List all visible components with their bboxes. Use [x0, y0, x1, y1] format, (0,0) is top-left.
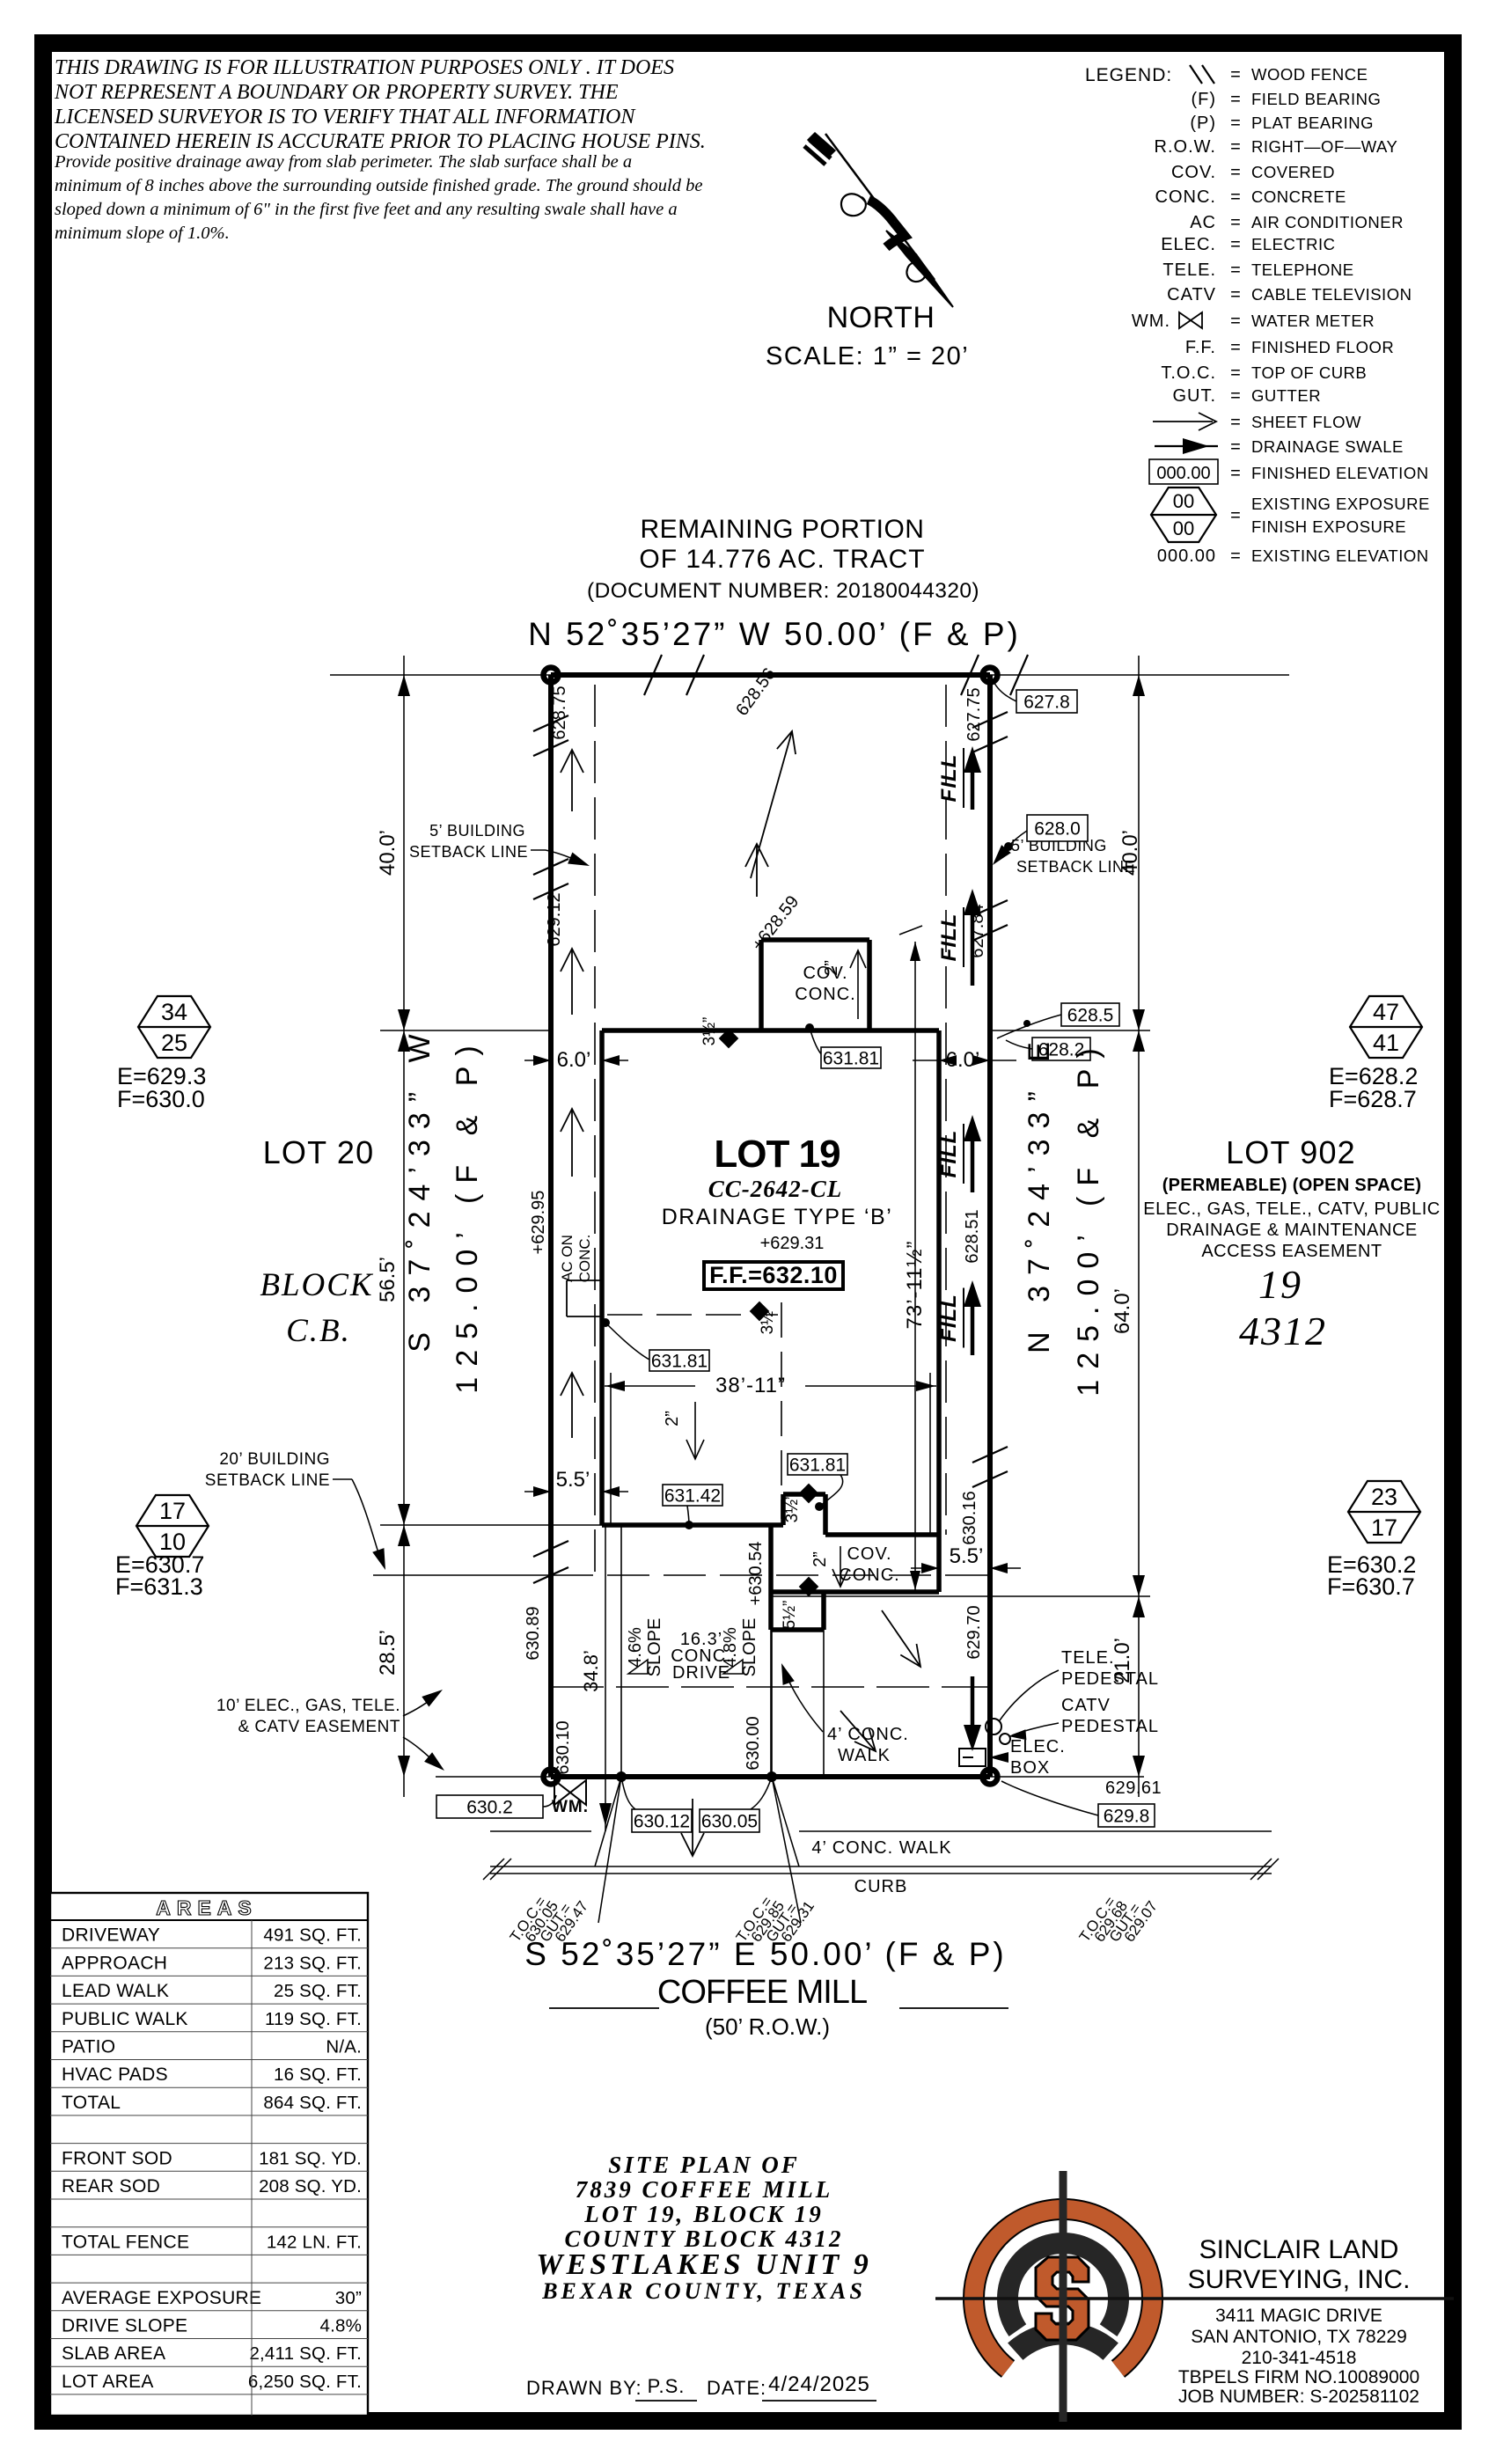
svg-text:=: = [1230, 235, 1241, 254]
svg-text:00: 00 [1173, 517, 1194, 539]
svg-text:629.61: 629.61 [1105, 1778, 1162, 1798]
svg-text:17: 17 [1371, 1514, 1397, 1541]
svg-text:C.B.: C.B. [286, 1313, 351, 1349]
svg-text:WATER METER: WATER METER [1251, 312, 1375, 330]
svg-text:SURVEYING, INC.: SURVEYING, INC. [1188, 2265, 1411, 2294]
svg-text:=: = [1230, 386, 1241, 406]
svg-text:4.6%: 4.6% [626, 1627, 645, 1668]
svg-text:208 SQ. YD.: 208 SQ. YD. [259, 2176, 362, 2196]
svg-text:N/A.: N/A. [326, 2037, 362, 2057]
svg-text:=: = [1230, 464, 1241, 483]
svg-text:DRAINAGE SWALE: DRAINAGE SWALE [1251, 437, 1404, 456]
svg-text:Provide positive drainage away: Provide positive drainage away from slab… [54, 152, 632, 172]
svg-text:210-341-4518: 210-341-4518 [1242, 2348, 1357, 2368]
svg-text:APPROACH: APPROACH [62, 1953, 167, 1973]
svg-text:4.8%: 4.8% [319, 2316, 362, 2336]
svg-text:FIELD BEARING: FIELD BEARING [1251, 90, 1381, 108]
svg-text:(DOCUMENT NUMBER: 2018004432: (DOCUMENT NUMBER: 20180044320) [587, 579, 979, 603]
svg-text:000.00: 000.00 [1157, 546, 1216, 566]
svg-text:=: = [1230, 312, 1241, 331]
svg-text:COFFEE MILL: COFFEE MILL [657, 1974, 867, 2011]
svg-text:TOTAL FENCE: TOTAL FENCE [62, 2232, 189, 2252]
svg-text:(50’ R.O.W.): (50’ R.O.W.) [705, 2013, 830, 2040]
svg-text:CONC.: CONC. [839, 1566, 899, 1585]
svg-text:630.10: 630.10 [554, 1720, 573, 1774]
svg-text:6.0’: 6.0’ [946, 1048, 980, 1072]
svg-text:F=631.3: F=631.3 [115, 1573, 203, 1600]
svg-text:S 37˚24’33” W: S 37˚24’33” W [403, 1023, 436, 1352]
svg-text:ELEC., GAS, TELE., CATV, PUBLI: ELEC., GAS, TELE., CATV, PUBLIC [1143, 1199, 1440, 1219]
svg-text:+629.31: +629.31 [760, 1234, 825, 1253]
svg-text:125.00’ (F & P): 125.00’ (F & P) [451, 1035, 484, 1393]
svg-text:6,250 SQ. FT.: 6,250 SQ. FT. [248, 2372, 362, 2392]
svg-text:CATV: CATV [1167, 285, 1216, 304]
svg-text:WOOD FENCE: WOOD FENCE [1251, 65, 1368, 84]
svg-text:TELEPHONE: TELEPHONE [1251, 260, 1354, 279]
svg-text:F=630.7: F=630.7 [1327, 1573, 1415, 1600]
svg-text:73’-11½”: 73’-11½” [903, 1241, 927, 1330]
svg-text:TOTAL: TOTAL [62, 2093, 121, 2113]
svg-text:R.O.W.: R.O.W. [1155, 137, 1216, 157]
svg-text:627.8: 627.8 [1023, 692, 1070, 712]
svg-text:TELE.: TELE. [1061, 1648, 1115, 1668]
svg-text:N 52˚35’27” W 50.00’ (F &: N 52˚35’27” W 50.00’ (F & P) [528, 616, 1021, 652]
svg-text:16 SQ. FT.: 16 SQ. FT. [274, 2064, 362, 2085]
svg-text:P.S.: P.S. [648, 2375, 686, 2397]
svg-text:F=628.7: F=628.7 [1329, 1086, 1417, 1112]
svg-text:630.05: 630.05 [701, 1811, 758, 1831]
svg-text:ELECTRIC: ELECTRIC [1251, 235, 1336, 253]
svg-text:ELEC.: ELEC. [1010, 1737, 1066, 1756]
svg-text:DATE:: DATE: [707, 2377, 766, 2399]
svg-text:PEDESTAL: PEDESTAL [1061, 1717, 1159, 1736]
svg-text:+629.95: +629.95 [529, 1191, 548, 1255]
svg-text:2”: 2” [663, 1411, 682, 1426]
svg-text:DRIVEWAY: DRIVEWAY [62, 1925, 160, 1946]
svg-text:& CATV EASEMENT: & CATV EASEMENT [238, 1718, 400, 1736]
svg-text:5.5’: 5.5’ [556, 1468, 590, 1492]
svg-text:=: = [1230, 506, 1241, 525]
svg-text:630.2: 630.2 [466, 1797, 513, 1817]
svg-text:F.F.: F.F. [1185, 338, 1216, 357]
svg-text:AREAS: AREAS [156, 1896, 258, 1919]
svg-text:LOT 20: LOT 20 [263, 1134, 375, 1170]
svg-text:FILL: FILL [937, 1130, 961, 1178]
svg-text:628.0: 628.0 [1034, 818, 1081, 839]
svg-text:HVAC PADS: HVAC PADS [62, 2064, 168, 2085]
svg-text:4.8%: 4.8% [721, 1627, 740, 1668]
svg-text:30”: 30” [335, 2288, 362, 2308]
svg-text:minimum slope of 1.0%.: minimum slope of 1.0%. [55, 224, 230, 243]
svg-text:(PERMEABLE) (OPEN SPACE): (PERMEABLE) (OPEN SPACE) [1162, 1176, 1422, 1195]
svg-text:SETBACK LINE: SETBACK LINE [1016, 858, 1135, 876]
svg-text:=: = [1230, 65, 1241, 84]
svg-text:EXISTING EXPOSURE: EXISTING EXPOSURE [1251, 495, 1430, 513]
svg-text:628.75: 628.75 [550, 686, 569, 739]
svg-text:=: = [1230, 187, 1241, 207]
svg-text:PEDESTAL: PEDESTAL [1061, 1669, 1159, 1689]
svg-text:CONCRETE: CONCRETE [1251, 187, 1346, 206]
svg-text:WM.: WM. [1132, 312, 1170, 331]
svg-text:SETBACK LINE: SETBACK LINE [409, 843, 528, 861]
svg-text:GUT.: GUT. [1172, 386, 1216, 406]
svg-text:JOB NUMBER: S-202581102: JOB NUMBER: S-202581102 [1178, 2387, 1419, 2407]
svg-text:3½”: 3½” [700, 1017, 719, 1046]
svg-text:2”: 2” [810, 1551, 830, 1567]
svg-text:4312: 4312 [1239, 1309, 1327, 1353]
svg-text:CC-2642-CL: CC-2642-CL [708, 1176, 843, 1202]
svg-text:FILL: FILL [937, 754, 961, 803]
svg-text:631.81: 631.81 [823, 1048, 879, 1068]
svg-text:LEAD WALK: LEAD WALK [62, 1981, 169, 2001]
svg-text:WESTLAKES UNIT 9: WESTLAKES UNIT 9 [536, 2248, 871, 2281]
svg-text:LEGEND:: LEGEND: [1085, 65, 1172, 85]
svg-text:F=630.0: F=630.0 [117, 1086, 205, 1112]
svg-text:491 SQ. FT.: 491 SQ. FT. [263, 1925, 362, 1946]
svg-text:25: 25 [161, 1030, 187, 1056]
svg-text:REAR SOD: REAR SOD [62, 2176, 160, 2196]
svg-text:=: = [1230, 137, 1241, 157]
svg-text:631.81: 631.81 [651, 1351, 708, 1371]
svg-text:631.81: 631.81 [789, 1455, 846, 1475]
svg-text:41: 41 [1373, 1030, 1399, 1056]
svg-text:19: 19 [1258, 1262, 1302, 1307]
svg-text:SCALE: 1” = 20’: SCALE: 1” = 20’ [766, 342, 969, 370]
svg-text:LOT 19: LOT 19 [714, 1133, 840, 1176]
svg-text:SINCLAIR LAND: SINCLAIR LAND [1199, 2235, 1399, 2264]
svg-text:CURB: CURB [854, 1877, 908, 1896]
svg-text:6.0’: 6.0’ [557, 1048, 591, 1072]
svg-text:FINISHED ELEVATION: FINISHED ELEVATION [1251, 464, 1429, 482]
svg-text:119 SQ. FT.: 119 SQ. FT. [265, 2009, 362, 2029]
svg-text:34.8’: 34.8’ [580, 1650, 602, 1692]
svg-text:=: = [1230, 163, 1241, 182]
svg-text:4’ CONC. WALK: 4’ CONC. WALK [811, 1838, 951, 1858]
svg-text:CABLE TELEVISION: CABLE TELEVISION [1251, 285, 1412, 304]
svg-text:CONC.: CONC. [576, 1235, 593, 1283]
svg-text:CONC.: CONC. [1155, 187, 1216, 207]
svg-text:DRIVE SLOPE: DRIVE SLOPE [62, 2316, 187, 2336]
svg-text:=: = [1230, 90, 1241, 109]
svg-text:=: = [1230, 260, 1241, 280]
svg-text:CONTAINED HEREIN IS ACCURATE P: CONTAINED HEREIN IS ACCURATE PRIOR TO PL… [55, 130, 706, 153]
svg-text:4’ CONC.: 4’ CONC. [827, 1725, 909, 1744]
svg-text:64.0’: 64.0’ [1111, 1288, 1134, 1334]
svg-text:5½”: 5½” [781, 1601, 799, 1630]
svg-text:FINISH EXPOSURE: FINISH EXPOSURE [1251, 517, 1406, 536]
svg-text:EXISTING ELEVATION: EXISTING ELEVATION [1251, 546, 1429, 565]
svg-text:AC ON: AC ON [559, 1235, 576, 1282]
svg-text:213 SQ. FT.: 213 SQ. FT. [263, 1953, 362, 1973]
svg-text:SAN ANTONIO, TX 78229: SAN ANTONIO, TX 78229 [1191, 2327, 1407, 2347]
svg-text:COVERED: COVERED [1251, 163, 1335, 181]
svg-text:629.8: 629.8 [1104, 1806, 1150, 1826]
svg-text:40.0’: 40.0’ [376, 830, 400, 876]
svg-text:=: = [1230, 338, 1241, 357]
svg-text:ACCESS EASEMENT: ACCESS EASEMENT [1201, 1242, 1382, 1261]
svg-text:3411 MAGIC DRIVE: 3411 MAGIC DRIVE [1215, 2306, 1382, 2326]
svg-text:=: = [1230, 546, 1241, 566]
svg-text:(P): (P) [1190, 114, 1216, 133]
svg-text:5’ BUILDING: 5’ BUILDING [429, 822, 525, 840]
svg-text:PUBLIC WALK: PUBLIC WALK [62, 2009, 188, 2029]
svg-text:630.00: 630.00 [744, 1716, 763, 1770]
svg-text:630.16: 630.16 [960, 1491, 979, 1544]
svg-text:630.89: 630.89 [524, 1606, 543, 1660]
svg-text:S 52˚35’27” E 50.00’ (F &: S 52˚35’27” E 50.00’ (F & P) [524, 1936, 1006, 1972]
svg-text:GUTTER: GUTTER [1251, 386, 1321, 405]
svg-text:=: = [1230, 437, 1241, 457]
svg-text:DRAINAGE TYPE ‘B’: DRAINAGE TYPE ‘B’ [662, 1205, 893, 1229]
svg-text:2,411 SQ. FT.: 2,411 SQ. FT. [249, 2343, 362, 2364]
svg-text:=: = [1230, 213, 1241, 232]
svg-text:SLAB AREA: SLAB AREA [62, 2343, 165, 2364]
svg-text:5.5’: 5.5’ [950, 1544, 984, 1568]
svg-text:142 LN. FT.: 142 LN. FT. [267, 2232, 362, 2252]
svg-text:=: = [1230, 363, 1241, 383]
svg-text:000.00: 000.00 [1156, 464, 1210, 483]
svg-text:630.12: 630.12 [634, 1811, 690, 1831]
svg-text:00: 00 [1173, 490, 1194, 512]
svg-text:2”: 2” [822, 960, 841, 976]
svg-text:PATIO: PATIO [62, 2037, 115, 2057]
svg-text:628.5: 628.5 [1067, 1005, 1114, 1025]
svg-text:628.51: 628.51 [963, 1209, 982, 1263]
svg-text:DRAWN BY:: DRAWN BY: [526, 2377, 642, 2399]
svg-text:F.F.=632.10: F.F.=632.10 [709, 1262, 838, 1288]
svg-text:TBPELS FIRM NO.10089000: TBPELS FIRM NO.10089000 [1178, 2367, 1419, 2387]
svg-text:THIS DRAWING IS FOR ILLUSTRATI: THIS DRAWING IS FOR ILLUSTRATION PURPOSE… [55, 56, 674, 79]
svg-text:17: 17 [159, 1498, 186, 1524]
svg-text:CONC.: CONC. [795, 985, 855, 1004]
svg-text:4/24/2025: 4/24/2025 [768, 2372, 870, 2396]
svg-text:WM.: WM. [552, 1798, 589, 1816]
svg-text:FILL: FILL [937, 913, 961, 962]
svg-text:TELE.: TELE. [1162, 260, 1216, 280]
svg-text:BLOCK: BLOCK [260, 1267, 374, 1303]
svg-text:3½”: 3½” [783, 1494, 802, 1523]
svg-text:629.70: 629.70 [964, 1605, 984, 1659]
svg-text:TOP OF CURB: TOP OF CURB [1251, 363, 1367, 382]
svg-text:WALK: WALK [838, 1746, 891, 1765]
svg-text:=: = [1230, 413, 1241, 432]
svg-text:SHEET FLOW: SHEET FLOW [1251, 413, 1361, 431]
svg-text:LICENSED SURVEYOR IS TO VERIFY: LICENSED SURVEYOR IS TO VERIFY THAT ALL … [54, 106, 636, 128]
svg-text:38’-11”: 38’-11” [715, 1374, 786, 1397]
svg-text:SETBACK LINE: SETBACK LINE [205, 1471, 330, 1490]
svg-text:631.42: 631.42 [664, 1485, 721, 1506]
svg-text:3½”: 3½” [759, 1306, 777, 1335]
svg-text:56.5’: 56.5’ [376, 1257, 400, 1302]
svg-text:34: 34 [161, 999, 187, 1025]
svg-text:=: = [1230, 114, 1241, 133]
svg-text:OF 14.776 AC. TRACT: OF 14.776 AC. TRACT [639, 545, 925, 574]
svg-text:FRONT SOD: FRONT SOD [62, 2148, 172, 2168]
svg-text:NOT REPRESENT A BOUNDARY OR PR: NOT REPRESENT A BOUNDARY OR PROPERTY SUR… [54, 81, 619, 104]
svg-text:COV.: COV. [847, 1544, 891, 1564]
svg-text:AVERAGE EXPOSURE: AVERAGE EXPOSURE [62, 2288, 261, 2308]
svg-text:=: = [1230, 285, 1241, 304]
svg-text:47: 47 [1373, 999, 1399, 1025]
svg-text:25 SQ. FT.: 25 SQ. FT. [274, 1981, 362, 2001]
svg-text:23: 23 [1371, 1484, 1397, 1510]
svg-text:minimum of 8 inches above the: minimum of 8 inches above the surroundin… [55, 176, 702, 195]
svg-text:SITE PLAN OF: SITE PLAN OF [608, 2152, 800, 2178]
svg-text:BEXAR COUNTY, TEXAS: BEXAR COUNTY, TEXAS [541, 2278, 866, 2304]
svg-text:LOT 19, BLOCK 19: LOT 19, BLOCK 19 [583, 2201, 824, 2227]
svg-text:10’ ELEC., GAS, TELE.: 10’ ELEC., GAS, TELE. [216, 1697, 400, 1715]
svg-text:629.12: 629.12 [545, 892, 564, 946]
svg-text:AC: AC [1190, 213, 1216, 232]
svg-text:125.00’ (F & P): 125.00’ (F & P) [1072, 1038, 1105, 1396]
svg-text:FINISHED FLOOR: FINISHED FLOOR [1251, 338, 1394, 356]
svg-text:DRAINAGE & MAINTENANCE: DRAINAGE & MAINTENANCE [1166, 1221, 1417, 1240]
svg-text:CATV: CATV [1061, 1696, 1111, 1715]
svg-text:RIGHT—OF—WAY: RIGHT—OF—WAY [1251, 137, 1397, 156]
svg-text:LOT AREA: LOT AREA [62, 2372, 154, 2392]
svg-text:20’ BUILDING: 20’ BUILDING [219, 1450, 330, 1469]
svg-text:28.5’: 28.5’ [376, 1630, 400, 1676]
svg-text:sloped down a minimum of 6" in: sloped down a minimum of 6" in the first… [55, 200, 678, 219]
svg-text:+630.54: +630.54 [746, 1542, 766, 1606]
svg-text:COV.: COV. [1171, 163, 1216, 182]
svg-text:LOT 902: LOT 902 [1226, 1134, 1356, 1170]
svg-text:T.O.C.: T.O.C. [1161, 363, 1216, 383]
svg-text:FILL: FILL [937, 1294, 961, 1342]
svg-text:ELEC.: ELEC. [1161, 235, 1216, 254]
svg-text:(F): (F) [1191, 90, 1216, 109]
svg-text:627.75: 627.75 [964, 687, 984, 741]
svg-text:AIR CONDITIONER: AIR CONDITIONER [1251, 213, 1404, 231]
svg-text:7839 COFFEE MILL: 7839 COFFEE MILL [576, 2176, 833, 2203]
svg-text:N 37˚24’33” E: N 37˚24’33” E [1023, 1031, 1056, 1353]
svg-text:REMAINING PORTION: REMAINING PORTION [641, 515, 925, 544]
svg-text:BOX: BOX [1010, 1758, 1050, 1778]
svg-text:864 SQ. FT.: 864 SQ. FT. [263, 2093, 362, 2113]
svg-text:PLAT BEARING: PLAT BEARING [1251, 114, 1374, 132]
svg-text:NORTH: NORTH [827, 301, 935, 334]
svg-text:181 SQ. YD.: 181 SQ. YD. [259, 2148, 362, 2168]
